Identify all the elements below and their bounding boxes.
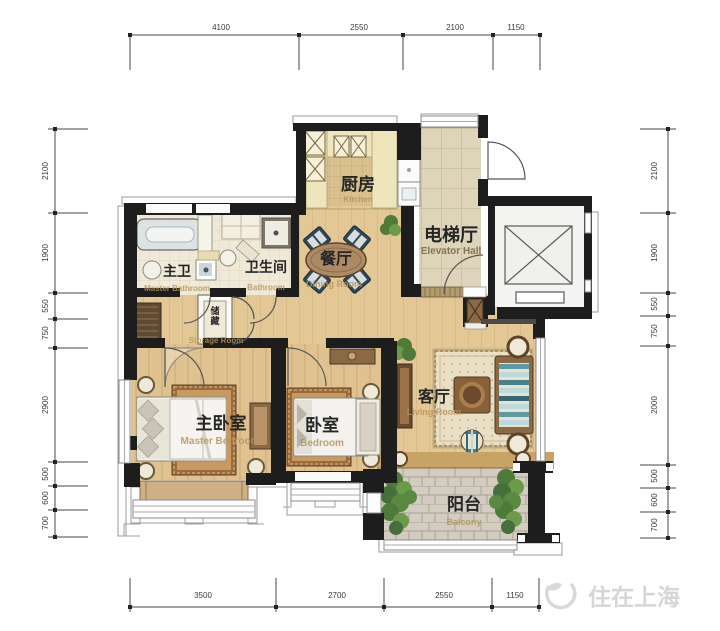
svg-text:餐厅: 餐厅	[319, 249, 352, 268]
svg-text:Dining Room: Dining Room	[306, 279, 362, 289]
svg-text:2100: 2100	[41, 162, 50, 180]
svg-text:1900: 1900	[41, 244, 50, 262]
svg-text:卫生间: 卫生间	[245, 259, 287, 275]
svg-text:Kitchen: Kitchen	[343, 195, 372, 204]
svg-text:阳台: 阳台	[447, 494, 481, 514]
svg-text:1900: 1900	[650, 244, 659, 262]
svg-text:Elevator Hall: Elevator Hall	[421, 246, 482, 257]
svg-text:500: 500	[650, 469, 659, 483]
svg-text:Bathroom: Bathroom	[247, 283, 285, 292]
svg-text:电梯厅: 电梯厅	[424, 224, 478, 245]
svg-text:2000: 2000	[650, 396, 659, 414]
svg-text:2550: 2550	[350, 23, 368, 32]
svg-text:4100: 4100	[212, 23, 230, 32]
svg-text:500: 500	[41, 467, 50, 481]
svg-text:600: 600	[41, 491, 50, 505]
svg-text:藏: 藏	[210, 315, 219, 326]
svg-text:550: 550	[41, 299, 50, 313]
svg-text:Storage Room: Storage Room	[189, 336, 244, 345]
svg-text:1150: 1150	[506, 591, 524, 600]
svg-text:客厅: 客厅	[418, 387, 450, 406]
svg-text:主卧室: 主卧室	[196, 413, 247, 433]
svg-text:厨房: 厨房	[341, 174, 375, 194]
svg-text:Balcony: Balcony	[446, 517, 481, 527]
svg-text:住在上海: 住在上海	[588, 584, 680, 610]
svg-text:600: 600	[650, 493, 659, 507]
svg-text:2100: 2100	[650, 162, 659, 180]
svg-text:750: 750	[41, 326, 50, 340]
svg-text:2700: 2700	[328, 591, 346, 600]
svg-text:Master Bathroom: Master Bathroom	[144, 284, 210, 293]
svg-text:2100: 2100	[446, 23, 464, 32]
svg-text:700: 700	[41, 516, 50, 530]
svg-text:2550: 2550	[435, 591, 453, 600]
svg-text:Master Bedroom: Master Bedroom	[181, 436, 260, 447]
svg-text:卧室: 卧室	[305, 415, 339, 435]
svg-text:Bedroom: Bedroom	[300, 438, 344, 449]
svg-text:3500: 3500	[194, 591, 212, 600]
svg-text:700: 700	[650, 518, 659, 532]
svg-text:储: 储	[210, 305, 219, 316]
svg-text:1150: 1150	[507, 23, 525, 32]
svg-text:Living Room: Living Room	[407, 407, 462, 417]
svg-text:550: 550	[650, 297, 659, 311]
svg-text:750: 750	[650, 324, 659, 338]
svg-text:主卫: 主卫	[163, 263, 191, 279]
svg-text:2900: 2900	[41, 396, 50, 414]
